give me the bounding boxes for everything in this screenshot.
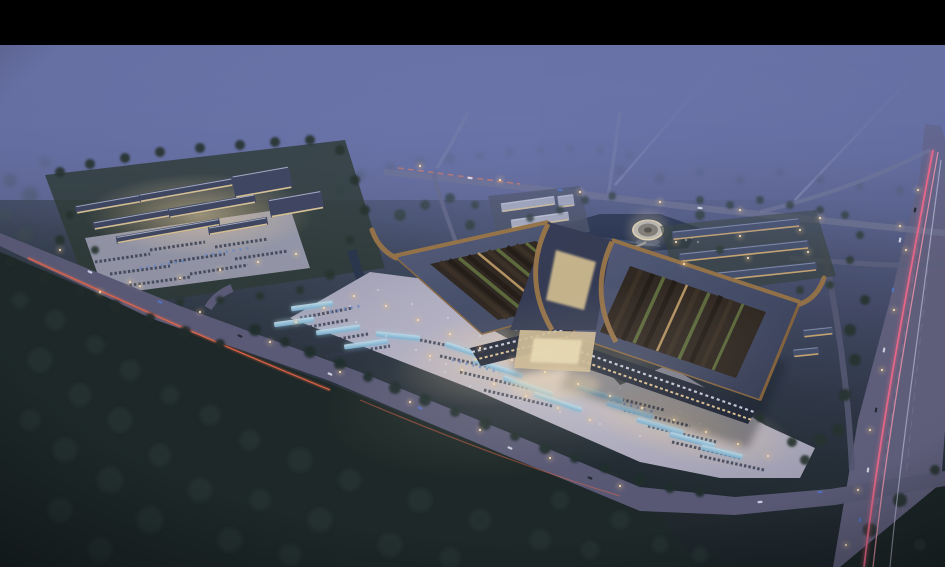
vignette [0,45,945,567]
rendering-stage [0,0,945,567]
atmosphere [0,45,945,567]
letterbox-bar-top [0,0,945,45]
aerial-rendering [0,0,945,567]
